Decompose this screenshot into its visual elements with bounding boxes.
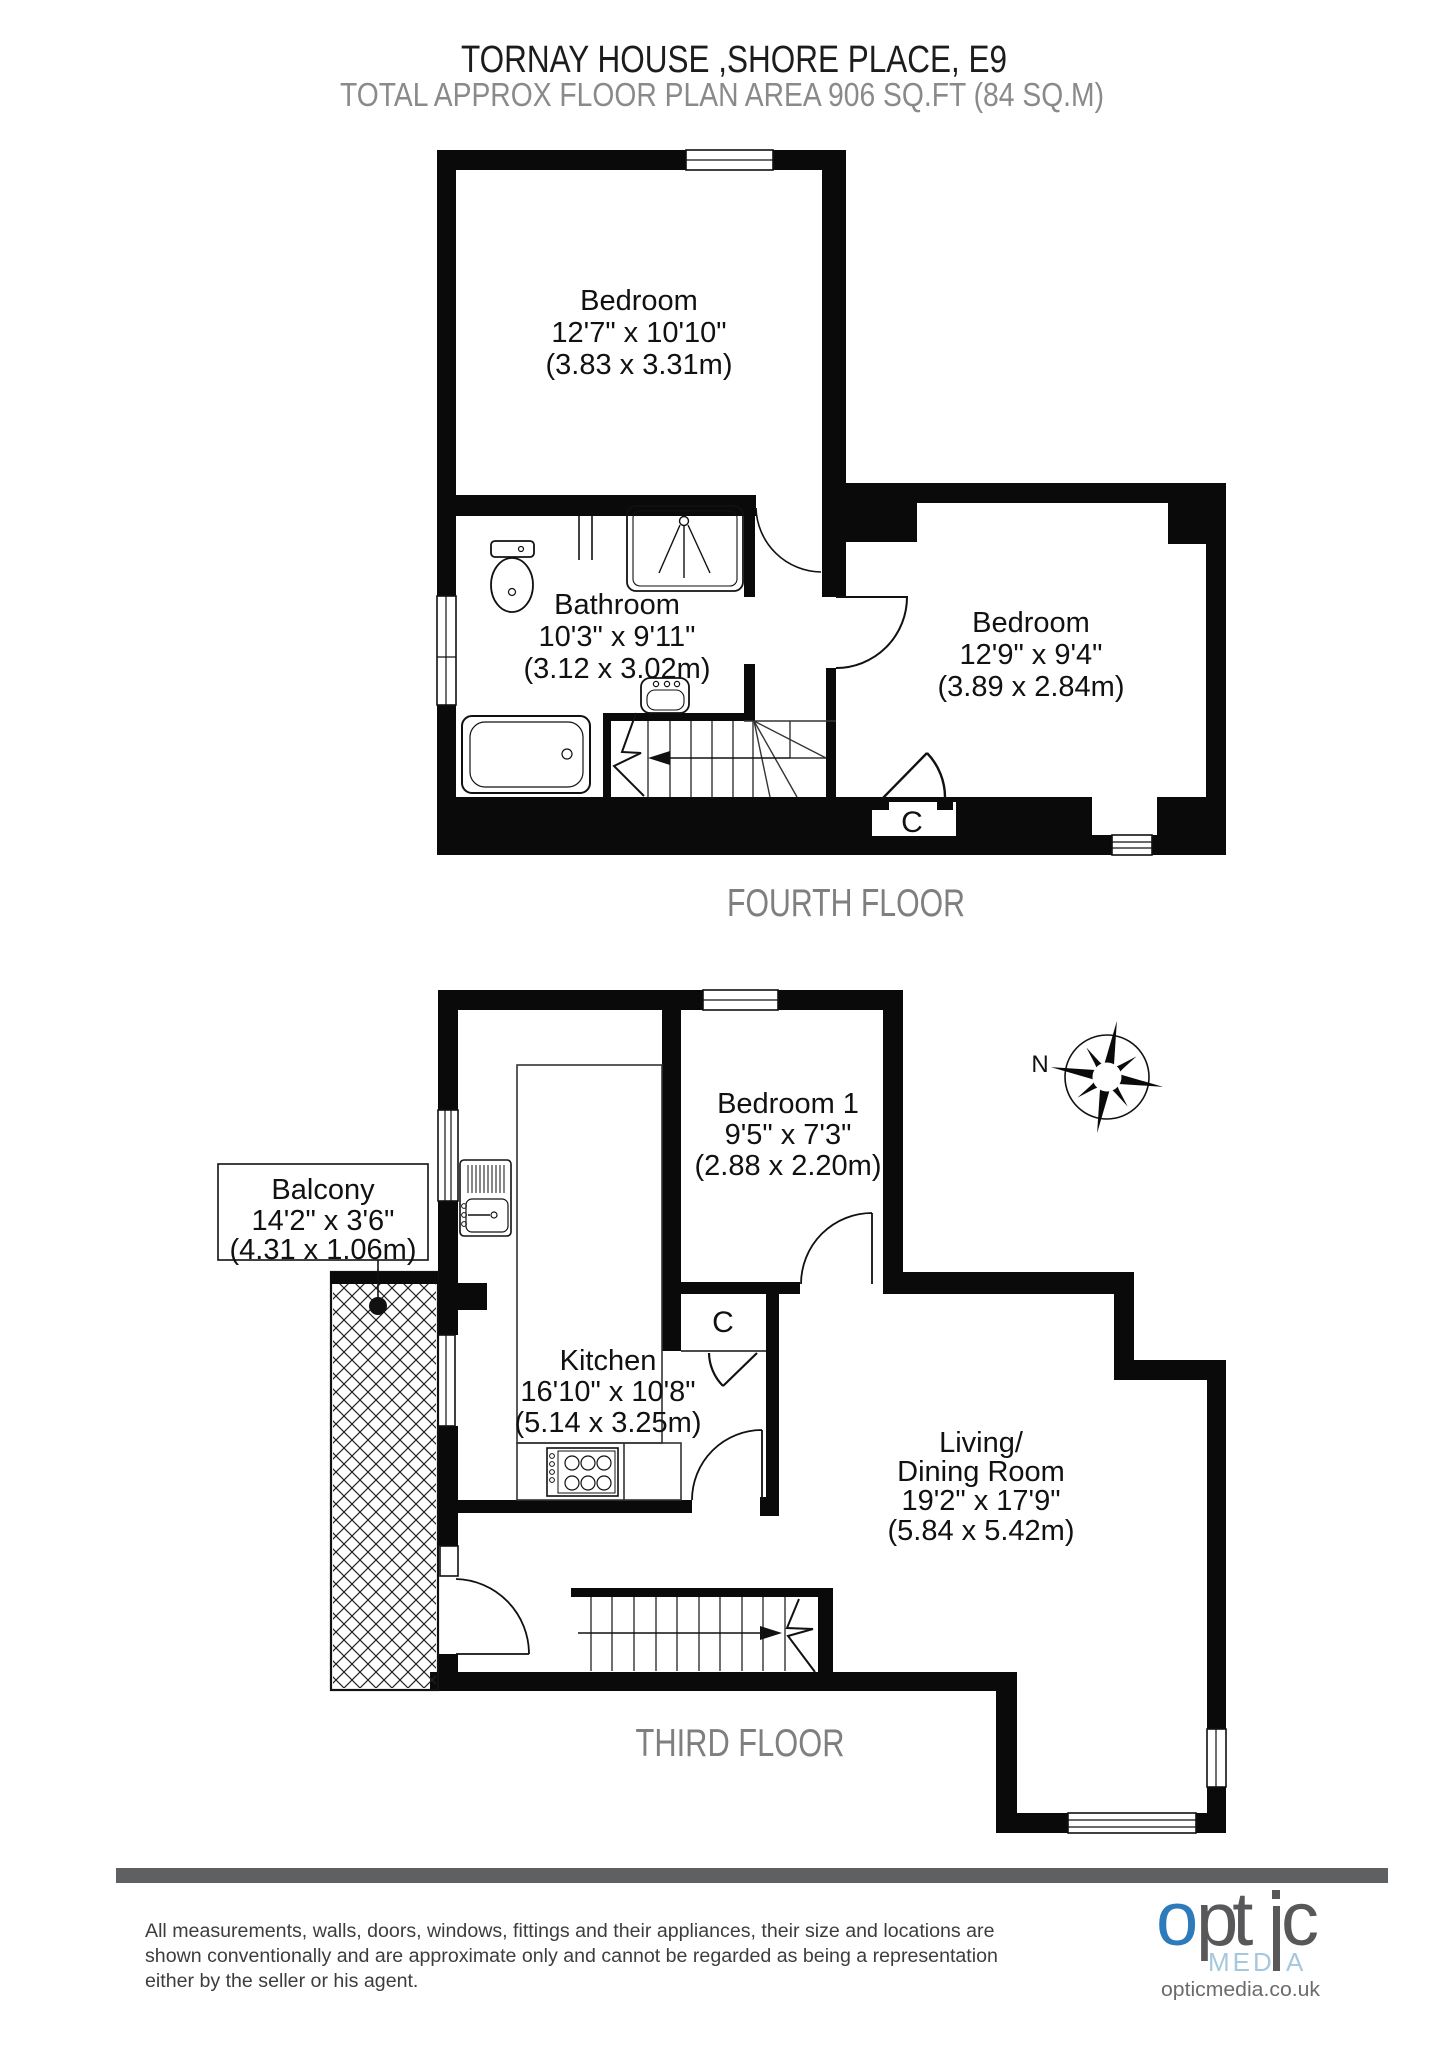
svg-text:Balcony: Balcony — [271, 1174, 375, 1206]
svg-text:(3.83 x 3.31m): (3.83 x 3.31m) — [546, 349, 733, 381]
svg-text:Bedroom 1: Bedroom 1 — [717, 1088, 859, 1120]
svg-text:o: o — [1156, 1877, 1198, 1962]
svg-text:16'10" x 10'8": 16'10" x 10'8" — [520, 1376, 695, 1408]
svg-text:THIRD FLOOR: THIRD FLOOR — [636, 1722, 845, 1765]
svg-text:Bedroom: Bedroom — [580, 285, 698, 317]
svg-text:9'5" x 7'3": 9'5" x 7'3" — [725, 1119, 852, 1151]
svg-text:Bathroom: Bathroom — [554, 589, 680, 621]
svg-text:C: C — [712, 1306, 734, 1339]
svg-text:(3.12 x 3.02m): (3.12 x 3.02m) — [524, 653, 711, 685]
svg-text:FOURTH FLOOR: FOURTH FLOOR — [727, 882, 965, 925]
svg-text:either by the seller or his ag: either by the seller or his agent. — [145, 1970, 418, 1992]
svg-text:A: A — [1286, 1947, 1304, 1977]
svg-text:C: C — [901, 806, 923, 839]
svg-text:19'2" x 17'9": 19'2" x 17'9" — [901, 1485, 1060, 1517]
svg-text:12'7" x 10'10": 12'7" x 10'10" — [551, 317, 726, 349]
svg-text:(4.31 x 1.06m): (4.31 x 1.06m) — [230, 1234, 417, 1266]
svg-text:14'2" x 3'6": 14'2" x 3'6" — [252, 1205, 395, 1237]
svg-text:shown conventionally and are a: shown conventionally and are approximate… — [145, 1945, 998, 1967]
svg-text:opticmedia.co.uk: opticmedia.co.uk — [1161, 1978, 1321, 2001]
svg-text:TORNAY HOUSE ,SHORE PLACE, E9: TORNAY HOUSE ,SHORE PLACE, E9 — [461, 39, 1007, 81]
svg-text:(5.84 x 5.42m): (5.84 x 5.42m) — [888, 1515, 1075, 1547]
svg-text:12'9" x 9'4": 12'9" x 9'4" — [960, 639, 1103, 671]
svg-text:(5.14 x 3.25m): (5.14 x 3.25m) — [515, 1407, 702, 1439]
svg-text:Living/: Living/ — [939, 1427, 1024, 1459]
svg-text:10'3" x 9'11": 10'3" x 9'11" — [539, 621, 696, 653]
svg-text:Kitchen: Kitchen — [560, 1345, 657, 1377]
svg-text:(2.88 x 2.20m): (2.88 x 2.20m) — [695, 1150, 882, 1182]
svg-text:(3.89 x 2.84m): (3.89 x 2.84m) — [938, 671, 1125, 703]
svg-text:Dining Room: Dining Room — [897, 1456, 1065, 1488]
svg-text:Bedroom: Bedroom — [972, 607, 1090, 639]
svg-text:TOTAL APPROX FLOOR PLAN AREA 9: TOTAL APPROX FLOOR PLAN AREA 906 SQ.FT (… — [340, 76, 1104, 113]
svg-text:All measurements, walls, doors: All measurements, walls, doors, windows,… — [145, 1920, 995, 1942]
svg-text:MED: MED — [1208, 1947, 1275, 1977]
svg-text:N: N — [1031, 1051, 1048, 1078]
